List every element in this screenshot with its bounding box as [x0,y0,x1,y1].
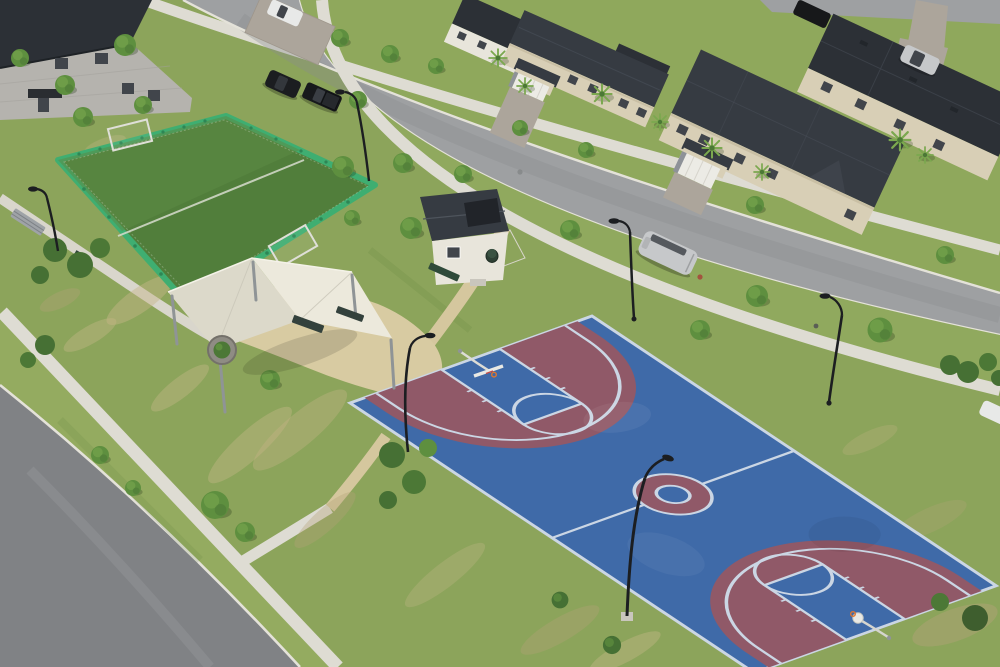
front-door [38,98,49,112]
utility-marker [814,324,819,329]
manhole [517,169,522,174]
hydrant [697,274,702,279]
aerial-photo [0,0,1000,667]
shed-window [447,247,460,258]
court-corner-bush [379,442,405,468]
scene-canvas [0,0,1000,667]
shed-panel [464,198,501,227]
corner-bush [962,605,988,631]
